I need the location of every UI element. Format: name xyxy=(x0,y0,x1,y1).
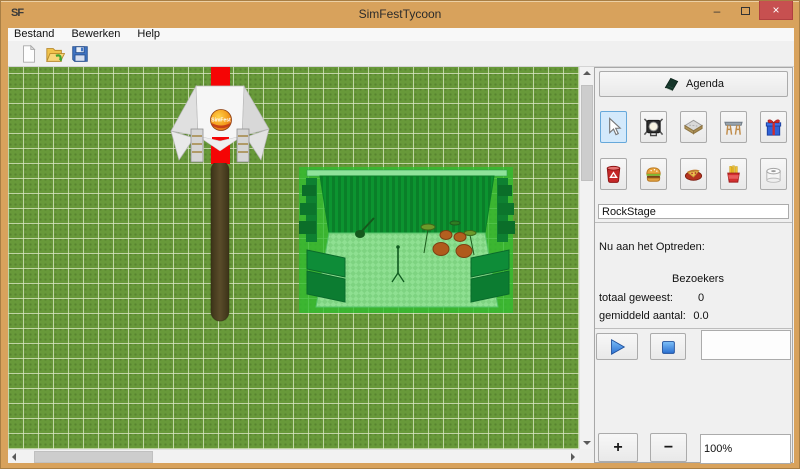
titlebar[interactable]: SF SimFestTycoon – × xyxy=(1,1,799,28)
total-visitors-value: 0 xyxy=(683,292,719,304)
tool-toilet-paper[interactable] xyxy=(760,158,787,190)
speed-slider[interactable]: -10 0 10 20 xyxy=(595,368,792,428)
toilet-paper-icon xyxy=(763,163,784,185)
play-icon xyxy=(607,337,627,357)
zoom-in-button[interactable]: + xyxy=(598,433,638,462)
scroll-up-button[interactable] xyxy=(580,67,594,81)
maximize-button[interactable] xyxy=(731,1,759,20)
scroll-left-button[interactable] xyxy=(8,450,22,464)
stage-placement-preview[interactable] xyxy=(299,167,515,313)
horizontal-scrollbar[interactable] xyxy=(8,449,579,463)
stats-group: Nu aan het Optreden: Bezoekers totaal ge… xyxy=(595,222,792,329)
minimize-button[interactable]: – xyxy=(703,1,731,20)
menu-bewerken[interactable]: Bewerken xyxy=(64,28,127,41)
save-icon xyxy=(70,44,90,64)
scrollbar-corner xyxy=(579,449,593,463)
tool-pizza[interactable] xyxy=(680,158,707,190)
tool-path-tile[interactable] xyxy=(680,111,707,143)
agenda-button[interactable]: Agenda xyxy=(599,71,788,97)
trash-can-icon xyxy=(603,163,624,185)
scroll-right-button[interactable] xyxy=(565,450,579,464)
cursor-icon xyxy=(603,116,624,138)
maximize-icon xyxy=(741,7,750,15)
scroll-up-icon xyxy=(583,71,591,75)
stop-icon xyxy=(658,337,678,357)
menu-bestand[interactable]: Bestand xyxy=(8,28,61,41)
toolbar xyxy=(8,41,794,67)
average-visitors-label: gemiddeld aantal: xyxy=(599,310,686,322)
hamburger-icon xyxy=(643,163,664,185)
close-button[interactable]: × xyxy=(759,1,793,20)
fries-icon xyxy=(723,163,744,185)
save-button[interactable] xyxy=(68,43,92,65)
visitors-header: Bezoekers xyxy=(650,273,746,285)
scroll-right-icon xyxy=(571,453,575,461)
tool-entrance-gate[interactable] xyxy=(720,111,747,143)
new-file-button[interactable] xyxy=(17,43,41,65)
entrance-tent[interactable]: SimFest xyxy=(171,86,269,163)
simfest-logo: SimFest xyxy=(211,110,232,131)
map-viewport[interactable]: SimFest xyxy=(8,67,579,449)
tool-trash-can[interactable] xyxy=(600,158,627,190)
close-icon: × xyxy=(772,3,779,17)
tent-logo-text: SimFest xyxy=(211,118,231,124)
vertical-scroll-thumb[interactable] xyxy=(581,85,593,181)
window-controls: – × xyxy=(703,1,793,20)
horizontal-scroll-thumb[interactable] xyxy=(34,451,153,463)
now-performing-label: Nu aan het Optreden: xyxy=(599,241,705,253)
tool-hamburger[interactable] xyxy=(640,158,667,190)
agenda-label: Agenda xyxy=(686,78,724,90)
play-button[interactable] xyxy=(596,333,638,360)
total-visitors-label: totaal geweest: xyxy=(599,292,673,304)
vertical-scrollbar[interactable] xyxy=(579,67,593,449)
open-folder-icon xyxy=(45,44,65,64)
scroll-left-icon xyxy=(12,453,16,461)
gift-icon xyxy=(763,116,784,138)
stop-button[interactable] xyxy=(650,333,686,360)
dirt-path[interactable] xyxy=(211,161,229,321)
scroll-down-icon xyxy=(583,441,591,445)
path-tile-icon xyxy=(683,116,704,138)
zoom-out-button[interactable]: − xyxy=(650,433,687,462)
new-file-icon xyxy=(19,44,39,64)
tool-stage-light[interactable] xyxy=(640,111,667,143)
average-visitors-value: 0.0 xyxy=(683,310,719,322)
minimize-icon: – xyxy=(714,4,721,18)
tent-ladder-right xyxy=(237,129,249,162)
scroll-down-button[interactable] xyxy=(580,435,594,449)
entrance-gate-icon xyxy=(723,116,744,138)
client-area: Bestand Bewerken Help xyxy=(8,28,794,463)
tool-fries[interactable] xyxy=(720,158,747,190)
stage-name-input[interactable] xyxy=(598,204,789,219)
menubar: Bestand Bewerken Help xyxy=(8,28,794,41)
festival-map[interactable]: SimFest xyxy=(8,67,579,449)
app-window: SF SimFestTycoon – × Bestand Bewerken He… xyxy=(0,0,800,469)
side-panel: Agenda xyxy=(594,67,793,463)
tool-gift[interactable] xyxy=(760,111,787,143)
tool-select-cursor[interactable] xyxy=(600,111,627,143)
open-file-button[interactable] xyxy=(43,43,67,65)
stage-light-icon xyxy=(643,116,664,138)
window-title: SimFestTycoon xyxy=(1,7,799,21)
menu-help[interactable]: Help xyxy=(130,28,167,41)
tent-ladder-left xyxy=(191,129,203,162)
zoom-level-input[interactable] xyxy=(700,434,791,464)
performer-display-box xyxy=(701,330,791,360)
agenda-book-icon xyxy=(663,76,680,93)
pizza-icon xyxy=(683,163,704,185)
